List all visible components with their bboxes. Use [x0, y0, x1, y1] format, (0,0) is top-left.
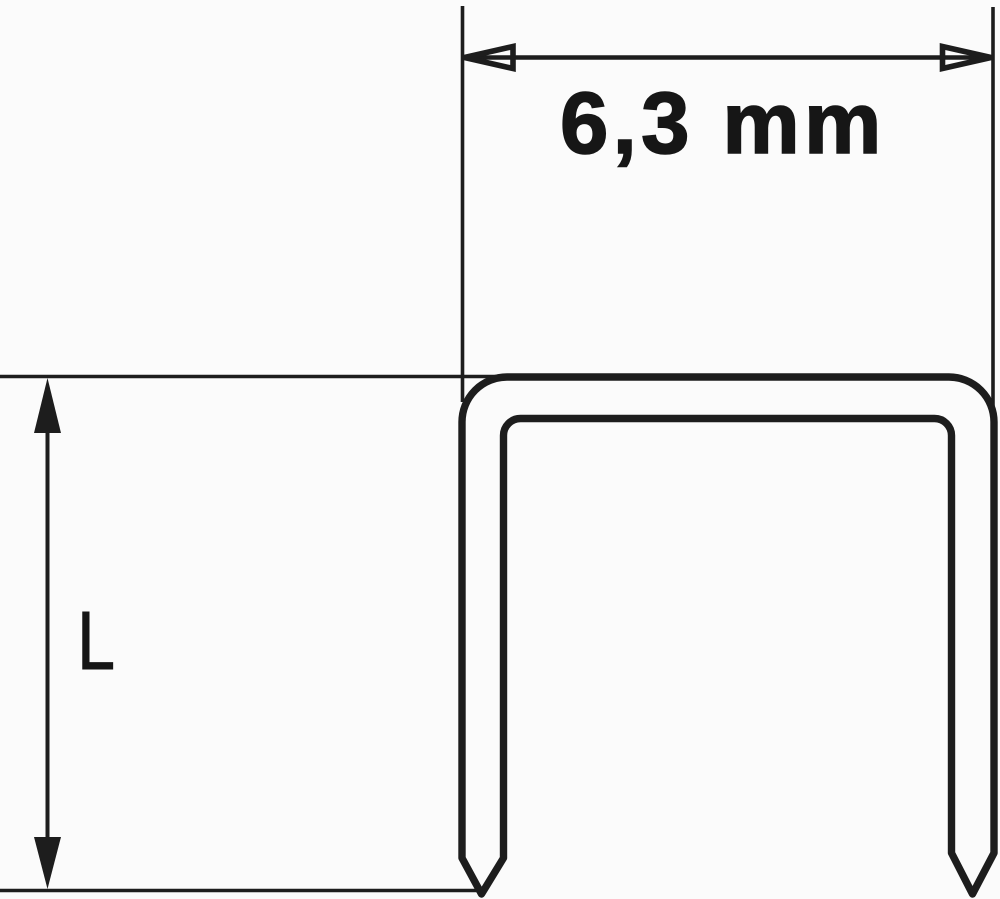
svg-text:L: L	[77, 595, 115, 688]
svg-text:6,3 mm: 6,3 mm	[560, 75, 886, 172]
